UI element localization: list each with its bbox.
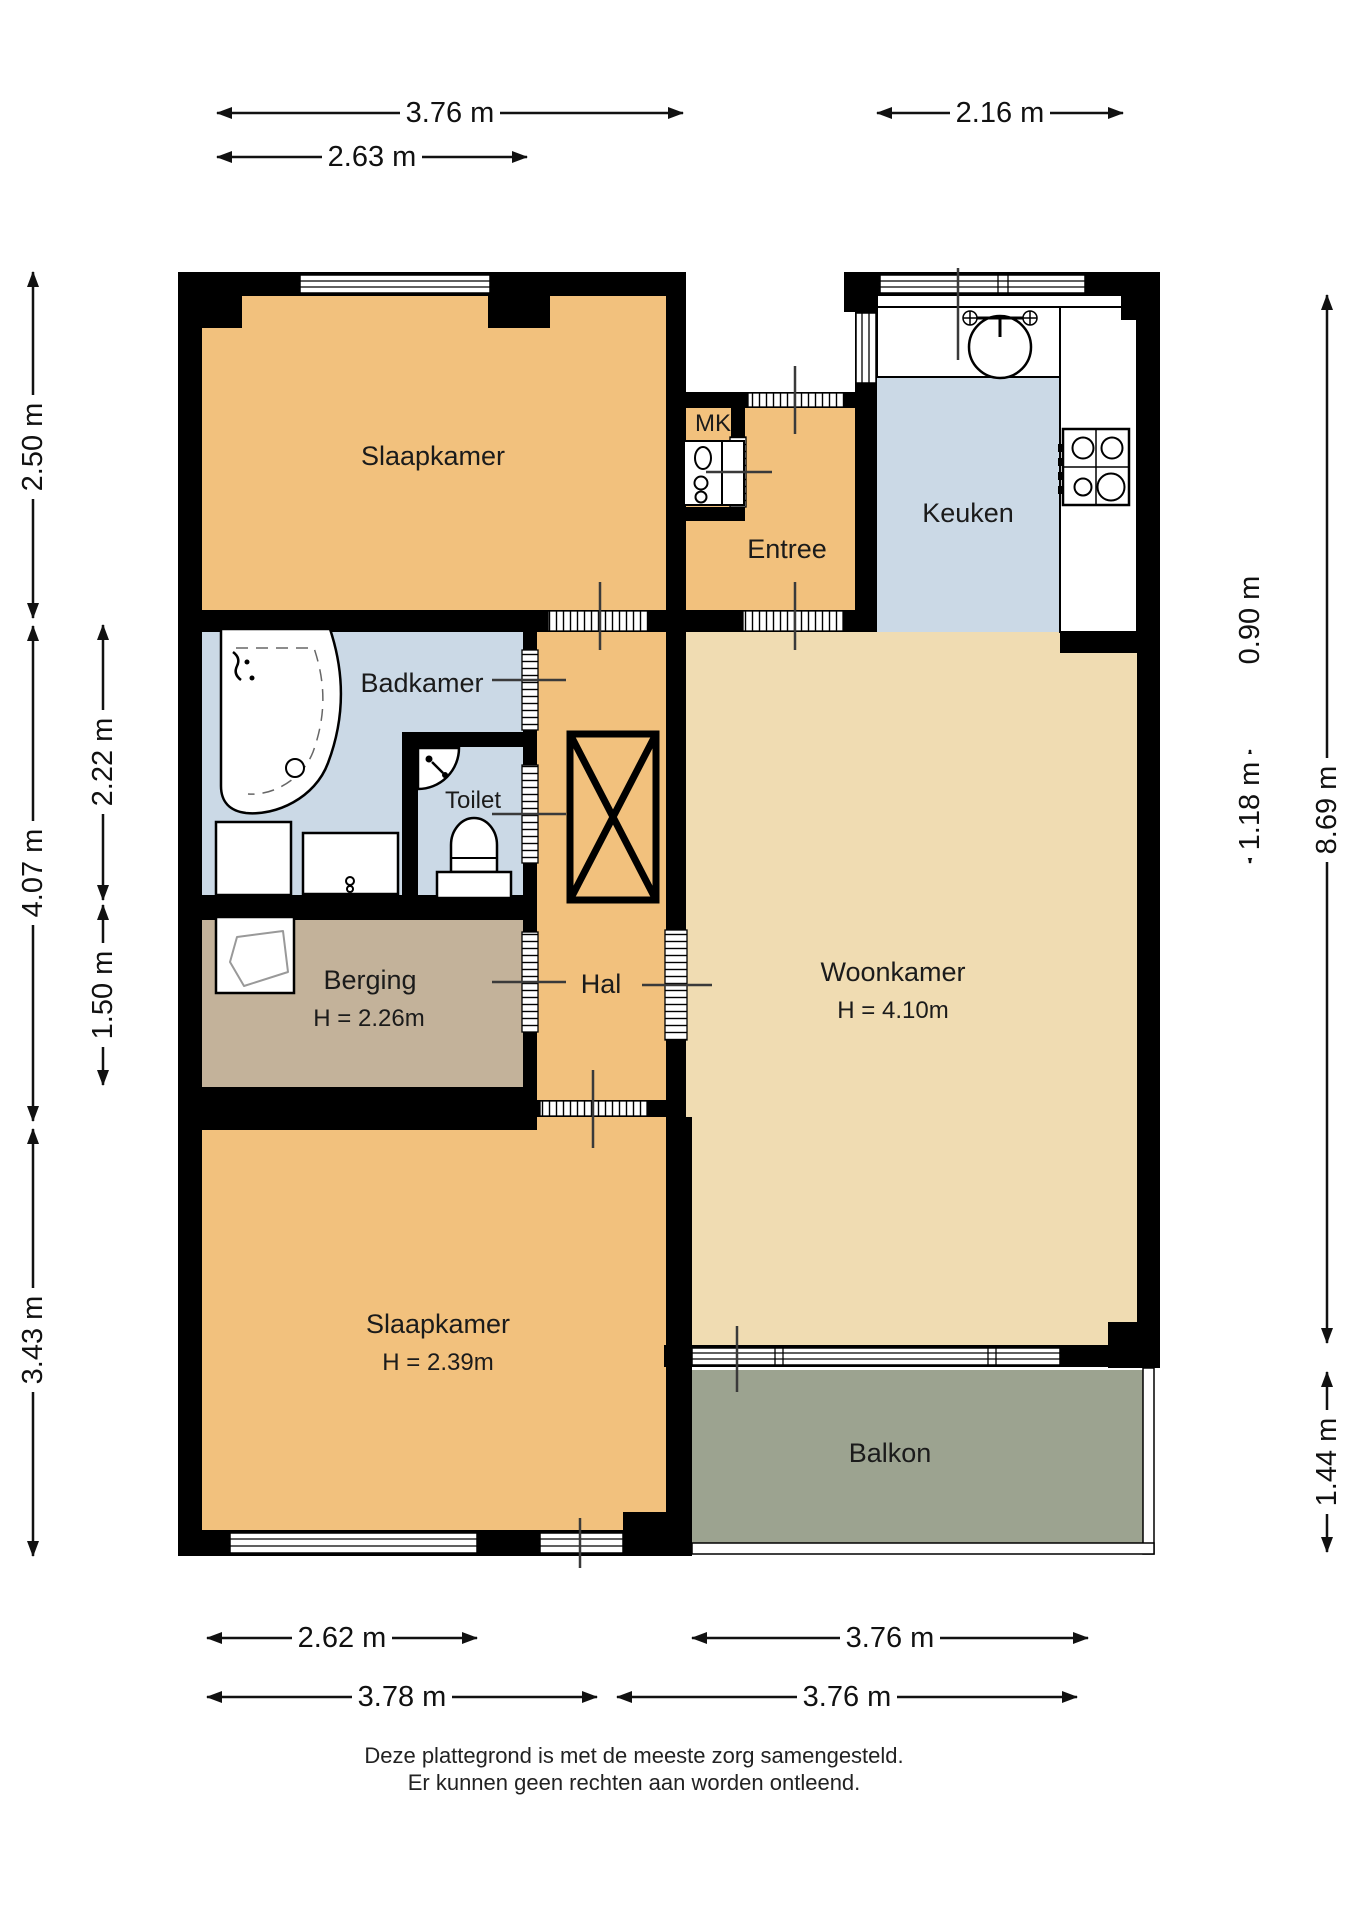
disclaimer-line-1: Deze plattegrond is met de meeste zorg s…	[364, 1743, 903, 1768]
door-entree-woonkamer	[743, 611, 843, 631]
dimension-right-144: 1.44 m	[1310, 1372, 1344, 1552]
label-entree: Entree	[747, 534, 827, 564]
window-slaapkamer-top	[300, 275, 490, 293]
dimension-left-222: 2.22 m	[86, 625, 120, 900]
dimension-left-407: 4.07 m	[16, 626, 50, 1121]
washbasin-icon	[303, 833, 398, 894]
label-balkon: Balkon	[849, 1438, 932, 1468]
svg-text:3.78 m: 3.78 m	[358, 1681, 447, 1713]
svg-text:4.07 m: 4.07 m	[17, 829, 49, 918]
svg-text:3.76 m: 3.76 m	[803, 1681, 892, 1713]
dimension-right-869: 8.69 m	[1310, 295, 1344, 1343]
svg-text:3.43 m: 3.43 m	[17, 1296, 49, 1385]
window-porch-keuken	[856, 313, 876, 383]
dimension-right-090: 0.90 m	[1233, 568, 1267, 672]
svg-text:8.69 m: 8.69 m	[1311, 766, 1343, 855]
label-slaapkamer-top: Slaapkamer	[361, 441, 505, 471]
room-entree-ext	[686, 521, 745, 610]
washing-machine-icon	[216, 917, 294, 993]
dimension-top-216: 2.16 m	[877, 96, 1123, 130]
label-toilet: Toilet	[445, 787, 501, 814]
dimension-top-263: 2.63 m	[217, 140, 527, 174]
door-badkamer	[522, 650, 538, 730]
room-woonkamer	[686, 632, 1137, 1345]
dimension-left-150: 1.50 m	[86, 905, 120, 1085]
dimension-bottom-376a: 3.76 m	[692, 1621, 1088, 1655]
svg-text:1.44 m: 1.44 m	[1311, 1418, 1343, 1507]
label-berging-height: H = 2.26m	[313, 1005, 424, 1032]
dimension-left-250: 2.50 m	[16, 272, 50, 618]
window-balkon-doors	[692, 1348, 1060, 1365]
dimension-bottom-378: 3.78 m	[207, 1680, 597, 1714]
window-slaapkamer-bottom-2	[540, 1533, 623, 1553]
svg-text:0.90 m: 0.90 m	[1234, 576, 1266, 665]
label-hal: Hal	[581, 969, 622, 999]
svg-text:2.22 m: 2.22 m	[87, 718, 119, 807]
floor-plan-page: Slaapkamer MK Entree Keuken Badkamer Toi…	[0, 0, 1358, 1920]
label-woonkamer: Woonkamer	[820, 957, 965, 987]
floor-plan-svg: Slaapkamer MK Entree Keuken Badkamer Toi…	[0, 0, 1358, 1920]
svg-text:3.76 m: 3.76 m	[406, 97, 495, 129]
label-keuken: Keuken	[922, 498, 1014, 528]
stove-icon	[1058, 429, 1129, 505]
bathroom-cabinet-icon	[216, 822, 291, 895]
label-mk: MK	[695, 410, 731, 437]
label-slaapkamer-bottom-height: H = 2.39m	[382, 1349, 493, 1376]
room-entree	[745, 408, 855, 610]
svg-text:2.63 m: 2.63 m	[328, 141, 417, 173]
svg-text:1.18 m: 1.18 m	[1234, 762, 1266, 851]
dimension-right-118: 1.18 m	[1233, 750, 1267, 863]
label-woonkamer-height: H = 4.10m	[837, 997, 948, 1024]
door-slaapkamer-top	[548, 611, 648, 631]
dimension-bottom-262: 2.62 m	[207, 1621, 477, 1655]
svg-text:3.76 m: 3.76 m	[846, 1622, 935, 1654]
dimension-bottom-376b: 3.76 m	[617, 1680, 1077, 1714]
label-slaapkamer-bottom: Slaapkamer	[366, 1309, 510, 1339]
disclaimer: Deze plattegrond is met de meeste zorg s…	[364, 1743, 903, 1795]
dimension-left-343: 3.43 m	[16, 1129, 50, 1556]
disclaimer-line-2: Er kunnen geen rechten aan worden ontlee…	[408, 1770, 861, 1795]
window-slaapkamer-bottom-1	[230, 1533, 477, 1553]
dimension-top-376: 3.76 m	[217, 96, 683, 130]
label-berging: Berging	[323, 965, 416, 995]
svg-text:1.50 m: 1.50 m	[87, 951, 119, 1040]
svg-text:2.16 m: 2.16 m	[956, 97, 1045, 129]
label-badkamer: Badkamer	[360, 668, 483, 698]
window-keuken-top	[880, 275, 1085, 293]
svg-text:2.62 m: 2.62 m	[298, 1622, 387, 1654]
svg-text:2.50 m: 2.50 m	[17, 403, 49, 492]
